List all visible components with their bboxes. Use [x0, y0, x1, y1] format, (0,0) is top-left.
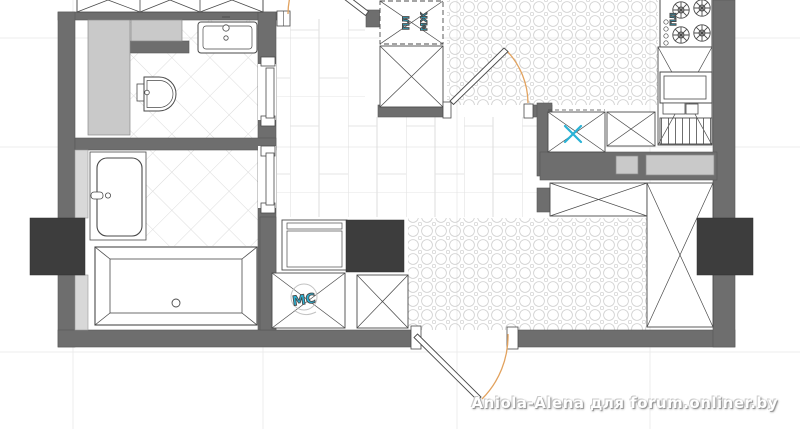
kitchen-shaft-small	[616, 156, 638, 174]
wall-bottom-left	[58, 330, 420, 347]
wall-wc-stub	[129, 41, 189, 53]
door-leaf	[414, 334, 481, 401]
floor-plan-drawing: ПЛ МЖ ПЛ	[0, 0, 800, 429]
washer-label: МС	[291, 291, 316, 310]
left-pier-block	[30, 218, 85, 275]
door-leaf	[344, 0, 369, 16]
utility-box-2	[357, 275, 408, 328]
bathtub	[95, 247, 257, 325]
tv-lowboard-box	[550, 183, 647, 216]
wc-sink	[198, 17, 257, 53]
wall-lining-lower	[75, 275, 88, 330]
kitchen-cabinet-box	[607, 112, 655, 146]
watermark-text: Aniola-Alena для forum.onliner.by	[472, 394, 778, 412]
stove-label: ПЛ	[669, 13, 678, 26]
bathroom-sink	[90, 152, 146, 240]
kitchen-counter	[658, 47, 712, 145]
wall-top-left	[58, 12, 290, 20]
wall-wc-bath-divider	[75, 138, 276, 150]
bathroom-tile-floor	[146, 150, 258, 246]
door-leaf	[266, 153, 274, 205]
kitchen-shaft-large	[646, 155, 714, 175]
hall-plank-floor	[277, 19, 365, 217]
entry-mosaic-floor	[408, 218, 647, 330]
hall-closet: ПЛ МЖ	[380, 1, 443, 107]
kitchen-mosaic-floor	[447, 0, 658, 105]
wc-duct-shaft	[88, 20, 130, 135]
wall-left-outer	[58, 12, 75, 347]
utility-counter	[282, 220, 347, 270]
door-leaf	[266, 68, 274, 118]
floor-plan-canvas: ПЛ МЖ ПЛ	[0, 0, 800, 429]
wc-upper-cabinet	[131, 20, 182, 41]
door-arc	[482, 334, 508, 399]
closet-label-2: МЖ	[420, 12, 430, 31]
dining-plank-floor	[365, 117, 538, 217]
wall-bottom-right	[510, 330, 735, 347]
washing-machine-box: МС	[272, 273, 345, 328]
dishwasher-hatched	[660, 118, 712, 144]
fridge-box	[548, 110, 605, 152]
wall-lining-upper	[75, 150, 88, 218]
stove: ПЛ	[660, 0, 712, 47]
closet-lower-wardrobe	[380, 46, 443, 107]
top-cropped-closets	[77, 0, 263, 12]
entrance-door	[411, 326, 518, 401]
center-dark-cabinet	[346, 220, 404, 272]
right-pier-block	[697, 218, 753, 275]
closet-label-1: ПЛ	[402, 16, 412, 30]
